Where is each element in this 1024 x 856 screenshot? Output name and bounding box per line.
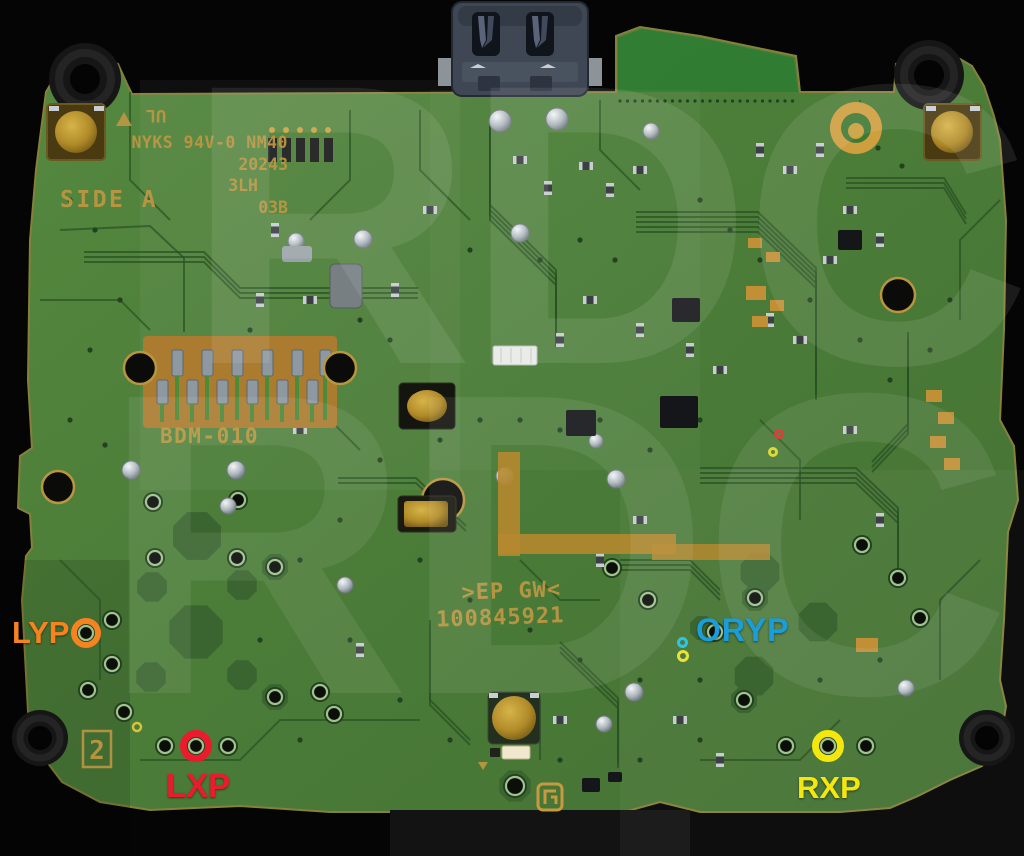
mfr-code-line1: NYKS 94V-0 NM40: [131, 133, 288, 152]
mfr-code-line3: 3LH: [228, 176, 258, 195]
rxp-testpoint-ring: [812, 730, 844, 762]
usb-c-connector: [438, 2, 602, 96]
lyp-label: LYP: [12, 615, 69, 651]
connector-label: BDM-010: [160, 424, 259, 448]
pcb-board-artwork: UL NYKS 94V-0 NM40 20243 3LH 03B SIDE A …: [0, 0, 1024, 856]
fiducial-mark: [830, 102, 882, 154]
marker-dot-yellow: [677, 650, 689, 662]
marker-dot-yellow-2: [768, 447, 778, 457]
mfr-code-line4: 03B: [258, 198, 288, 217]
tact-switch-left: [47, 104, 105, 160]
pcb-scan-stage: UL NYKS 94V-0 NM40 20243 3LH 03B SIDE A …: [0, 0, 1024, 856]
lyp-testpoint-ring: [71, 618, 101, 648]
rxp-label: RXP: [797, 770, 861, 806]
board-id-line2: 100845921: [436, 603, 565, 632]
board-id-line1: >EP GW<: [461, 577, 562, 605]
mfr-code-line2: 20243: [238, 155, 288, 174]
tact-switch-right: [924, 104, 981, 160]
position-marking: 2: [89, 736, 105, 766]
ul-mark: UL: [146, 105, 166, 125]
lxp-label: LXP: [166, 767, 230, 805]
marker-dot-red: [774, 429, 784, 439]
oryp-label: ORYP: [696, 612, 790, 649]
lxp-testpoint-ring: [180, 730, 212, 762]
marker-dot-cyan: [677, 637, 688, 648]
side-label: SIDE A: [60, 187, 158, 213]
